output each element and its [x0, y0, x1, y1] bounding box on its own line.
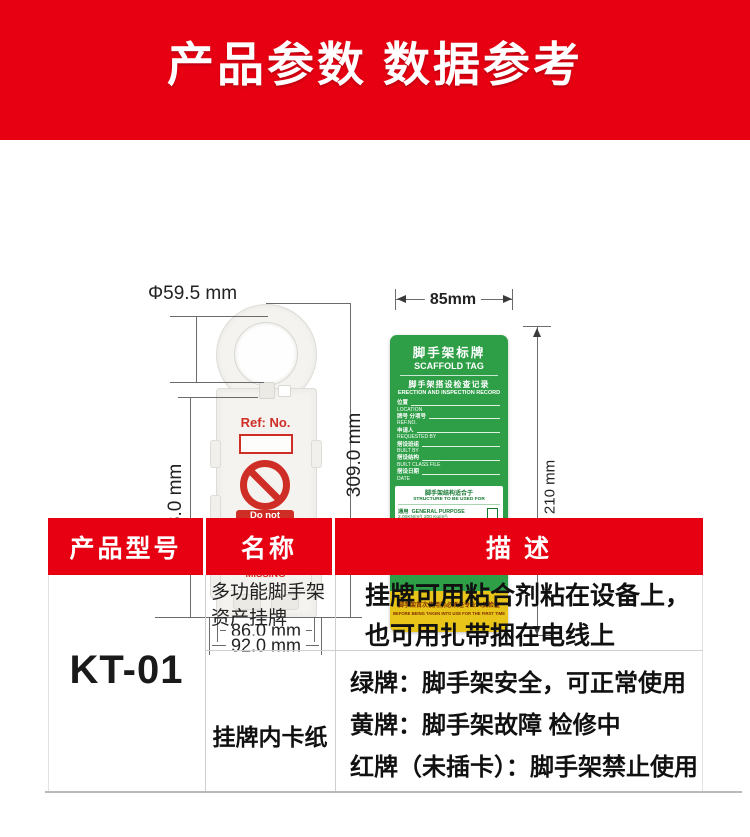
field-label-cn: 申请人	[397, 428, 414, 435]
field-label-cn: 搭设日期	[397, 469, 419, 476]
field-label-cn: 位置	[397, 400, 408, 407]
dim-total-height: 309.0 mm	[344, 413, 366, 497]
dim-line	[512, 289, 513, 310]
arrow-icon	[397, 295, 406, 303]
field-label-en: BUILT BY	[397, 448, 501, 454]
prohibition-slash	[248, 469, 281, 502]
dim-line	[170, 382, 264, 383]
row2-description: 绿牌：脚手架安全，可正常使用 黄牌：脚手架故障 检修中 红牌（未插卡）：脚手架禁…	[350, 663, 702, 789]
row1-desc-line: 挂牌可用粘合剂粘在设备上，	[365, 576, 700, 616]
col-header-model: 产品型号	[48, 518, 203, 575]
ref-no-label: Ref: No.	[216, 415, 315, 430]
dim-hole-diameter: Φ59.5 mm	[148, 283, 237, 305]
field-label-cn: 搭设结构	[397, 455, 419, 462]
field-blank-line	[429, 418, 500, 419]
table-border	[335, 575, 336, 793]
dim-card-height: 210 mm	[542, 460, 559, 514]
row1-description: 挂牌可用粘合剂粘在设备上， 也可用扎带捆在电线上	[365, 576, 700, 656]
field-label-en: LOCATION	[397, 407, 501, 413]
ref-no-box	[239, 434, 293, 454]
field-label-en: REF.NO.	[397, 420, 501, 426]
header-banner: 产品参数 数据参考	[0, 0, 750, 140]
field-blank-line	[422, 474, 500, 475]
prohibition-icon	[240, 460, 290, 510]
row1-name-line: 多功能脚手架	[211, 580, 333, 606]
row2-desc-line: 黄牌：脚手架故障 检修中	[350, 705, 702, 747]
col-header-name: 名称	[206, 518, 332, 575]
field-blank-line	[411, 405, 500, 406]
dim-line	[266, 303, 350, 304]
arrow-icon	[503, 295, 512, 303]
model-value: KT-01	[48, 648, 205, 693]
dim-line	[196, 316, 197, 382]
card-subtitle-en: ERECTION AND INSPECTION RECORD	[390, 390, 508, 396]
spec-table: 产品型号 名称 描 述 KT-01 多功能脚手架 资产挂牌 挂牌可用粘合剂粘在设…	[48, 518, 703, 793]
card-subtitle-cn: 脚手架搭设检查记录	[390, 379, 508, 390]
row1-desc-line: 也可用扎带捆在电线上	[365, 616, 700, 656]
tag-hanging-hole	[234, 322, 298, 386]
field-blank-line	[417, 432, 500, 433]
field-label-en: BUILT CLASS FILE	[397, 462, 501, 468]
table-border	[205, 575, 206, 793]
dim-line	[170, 316, 268, 317]
row2-desc-line: 绿牌：脚手架安全，可正常使用	[350, 663, 702, 705]
row2-name: 挂牌内卡纸	[206, 718, 334, 752]
product-parameter-sheet: 产品参数 数据参考 Ref: No. Do not use this equip…	[0, 0, 750, 837]
field-label-en: DATE	[397, 476, 501, 482]
card-title-en: SCAFFOLD TAG	[390, 361, 508, 371]
col-header-desc: 描 述	[335, 518, 703, 575]
field-label-cn: 牌号 分项号	[397, 414, 426, 421]
field-blank-line	[422, 460, 500, 461]
field-label-cn: 搭设班组	[397, 442, 419, 449]
field-blank-line	[422, 446, 500, 447]
arrow-icon	[533, 328, 541, 337]
row1-name-line: 资产挂牌	[211, 606, 333, 632]
table-bottom-rule	[45, 791, 742, 793]
tag-side-bump	[210, 440, 221, 468]
card-title-cn: 脚手架标牌	[390, 342, 508, 361]
dim-card-width: 85mm	[425, 291, 481, 309]
row1-name: 多功能脚手架 资产挂牌	[211, 580, 333, 632]
tag-slot	[278, 385, 291, 397]
structure-head-en: STRUCTURE TO BE USED FOR	[398, 497, 500, 502]
tag-side-bump	[311, 440, 322, 468]
table-border	[702, 575, 703, 793]
tag-clip	[259, 382, 275, 399]
card-divider	[400, 375, 498, 376]
field-label-en: REQUESTED BY	[397, 434, 501, 440]
row2-desc-line: 红牌（未插卡）：脚手架禁止使用	[350, 747, 702, 789]
card-fields: 位置 LOCATION 牌号 分项号 REF.NO. 申请人 REQUESTED…	[397, 400, 501, 482]
structure-head-cn: 脚手架结构适合于	[398, 488, 500, 497]
page-title: 产品参数 数据参考	[0, 26, 750, 95]
